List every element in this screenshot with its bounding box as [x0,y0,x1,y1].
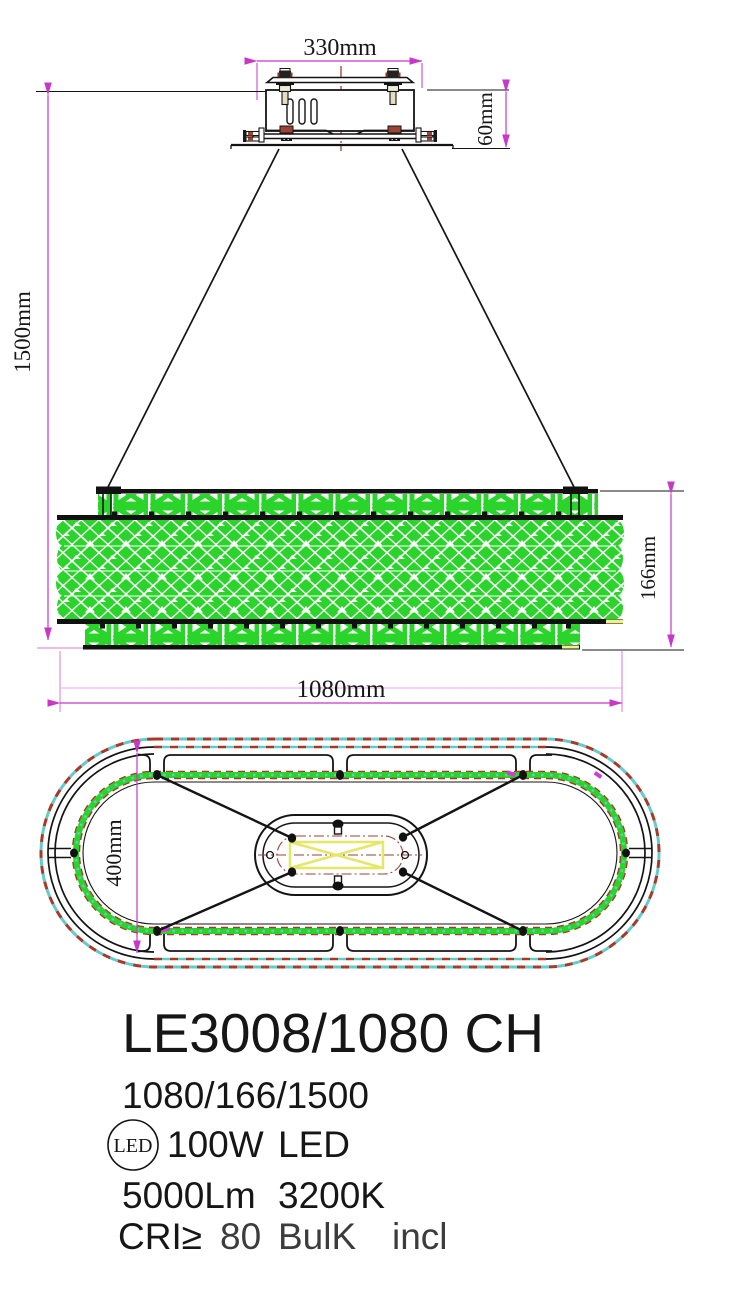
dim-330-label: 330mm [303,35,377,61]
canopy-plan [255,815,427,895]
dim-166-label: 166mm [636,536,660,600]
dim-400-label: 400mm [101,819,126,886]
led-badge-label: LED [114,1135,153,1157]
outer-band-top-bar [57,515,623,520]
dimension-1080: 1080mm [60,651,622,712]
spec-panel: LE3008/1080 CH 1080/166/1500 LED 100W LE… [108,1002,544,1257]
yellow-accent-1 [606,620,623,624]
bulb-note: BulK [278,1216,356,1257]
included-note: incl [392,1216,448,1257]
mounting-plate [267,78,413,83]
cable-anchor-right [563,487,588,495]
dim-60-label: 60mm [473,92,497,146]
side-view: 330mm 60mm 1500mm 166mm 1080mm [10,35,684,712]
plan-view: 400mm [41,739,659,967]
spec-sheet: 330mm 60mm 1500mm 166mm 1080mm [0,0,752,1300]
ring-joints [48,849,652,858]
power-value: 100W [167,1124,264,1165]
color-temp-value: 3200K [278,1175,385,1216]
outer-band-bottom-bar [57,619,623,624]
yellow-accent-2 [562,646,579,649]
magenta-ticks [161,770,603,932]
size-code: 1080/166/1500 [122,1075,369,1116]
model-number: LE3008/1080 CH [122,1002,544,1064]
dimension-60: 60mm [427,90,510,149]
fixture-side [56,487,624,650]
cri-value: 80 [220,1216,261,1257]
suspension-cables [107,149,575,489]
vent-slots [287,99,317,124]
canopy-side [231,66,453,151]
dim-1080-label: 1080mm [297,676,386,703]
outer-band-lattice [56,520,624,619]
technical-drawing: 330mm 60mm 1500mm 166mm 1080mm [0,0,752,1300]
bracket-left [243,128,264,142]
canopy-bottom-plate [253,134,433,139]
dim-1500-label: 1500mm [10,291,35,373]
inner-ring-lower-lattice [85,624,580,645]
bracket-right [416,128,437,142]
source-label: LED [278,1124,350,1165]
led-ring-band [73,772,628,935]
cable-anchor-left [96,487,121,495]
lumens-value: 5000Lm [122,1175,256,1216]
fixture-bottom-plate [83,645,580,650]
cri-prefix: CRI≥ [118,1216,202,1257]
